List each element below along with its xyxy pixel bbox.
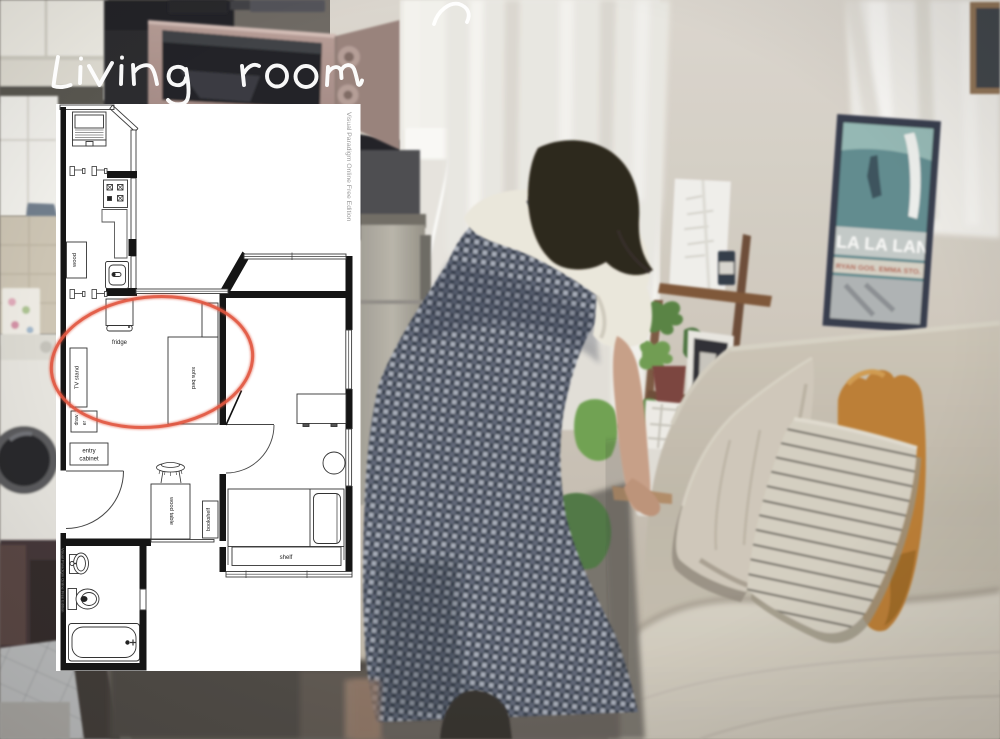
svg-text:fridge: fridge xyxy=(112,340,128,346)
svg-text:TV stand: TV stand xyxy=(75,366,81,389)
svg-text:entry: entry xyxy=(82,449,95,455)
svg-text:Visual Paradigm Online Free Ed: Visual Paradigm Online Free Edition xyxy=(61,548,66,612)
svg-text:bookshelf: bookshelf xyxy=(206,507,212,531)
svg-text:Visual Paradigm Online Free Ed: Visual Paradigm Online Free Edition xyxy=(345,112,352,222)
svg-text:wood: wood xyxy=(72,253,78,268)
svg-text:wood table: wood table xyxy=(168,496,174,525)
svg-text:sofa bed: sofa bed xyxy=(190,367,196,389)
svg-text:er: er xyxy=(82,420,88,425)
svg-text:shelf: shelf xyxy=(280,555,293,561)
svg-text:cabinet: cabinet xyxy=(79,457,99,463)
svg-text:draw: draw xyxy=(74,414,80,425)
